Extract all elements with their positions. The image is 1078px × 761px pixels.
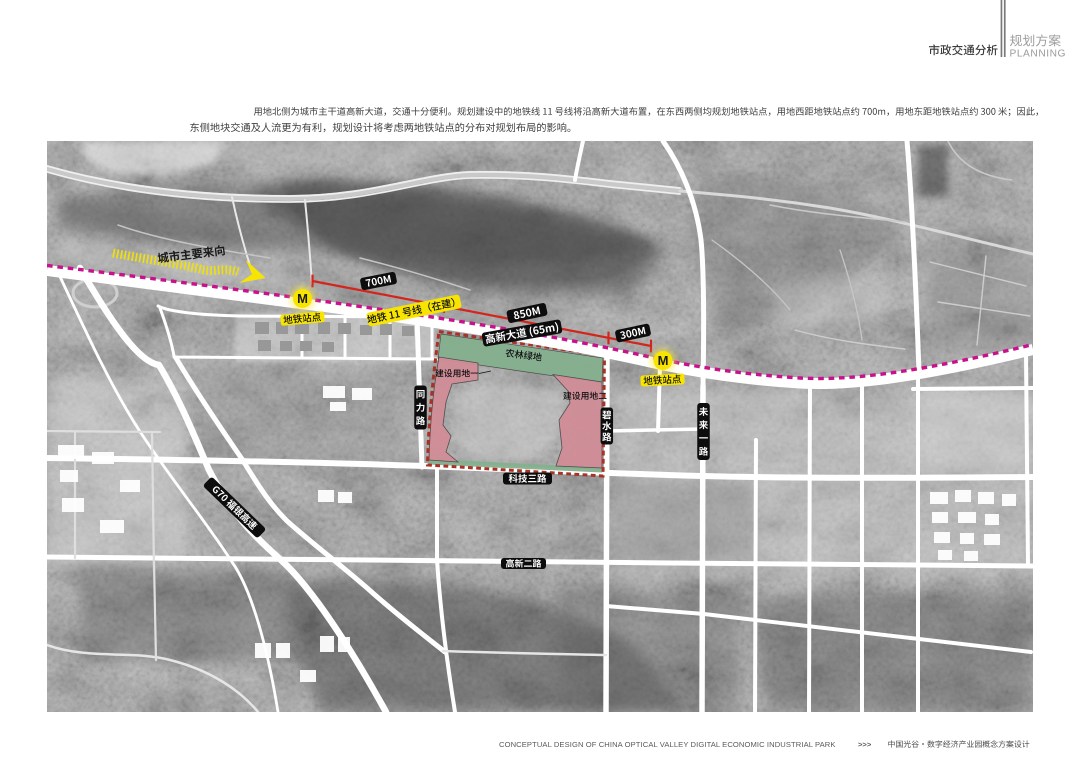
svg-text:M: M [658,353,669,368]
svg-text:PLANNING: PLANNING [1010,49,1066,60]
svg-text:CONCEPTUAL DESIGN OF CHINA OPT: CONCEPTUAL DESIGN OF CHINA OPTICAL VALLE… [499,740,836,749]
svg-text:>>>: >>> [858,740,872,749]
svg-text:M: M [297,291,308,306]
